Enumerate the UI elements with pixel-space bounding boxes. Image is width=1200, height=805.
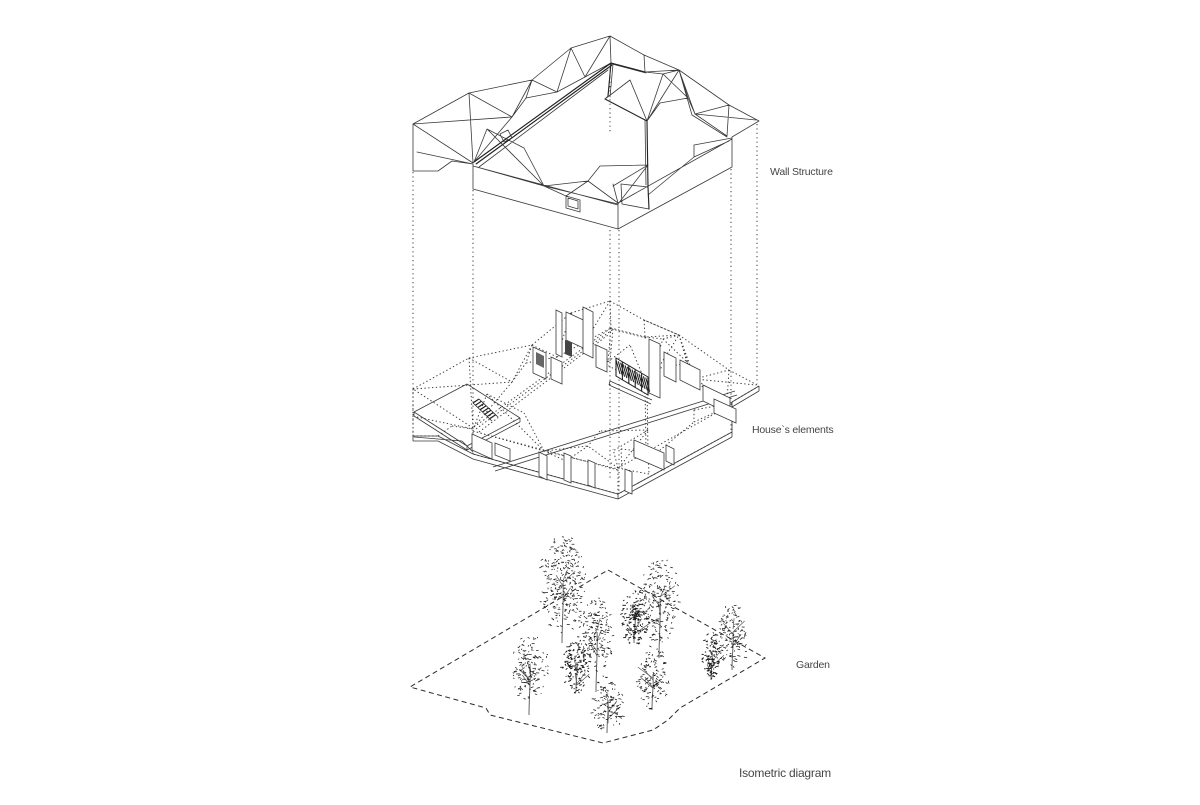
svg-text:House`s elements: House`s elements xyxy=(752,424,833,436)
svg-text:Isometric diagram: Isometric diagram xyxy=(739,766,831,780)
svg-text:Wall Structure: Wall Structure xyxy=(770,166,833,178)
svg-text:Garden: Garden xyxy=(796,659,830,671)
